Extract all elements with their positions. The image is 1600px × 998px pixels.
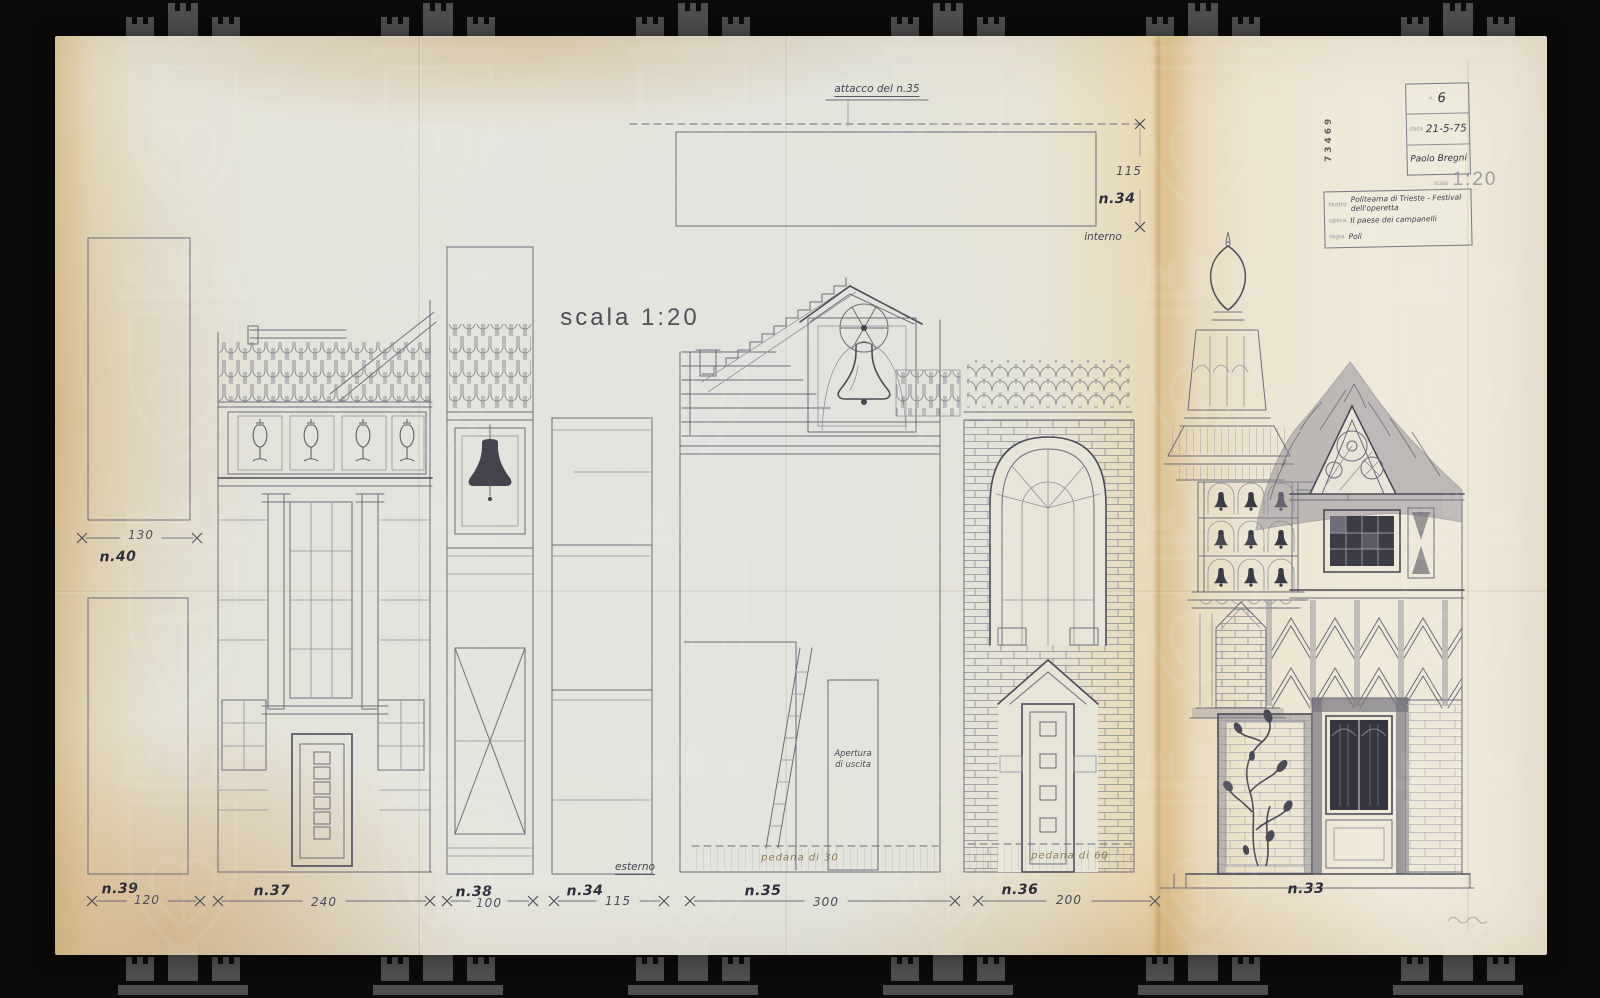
dim-n37: 240 [311,895,337,909]
piece-label-n36: n.36 [1001,882,1038,899]
dim-n38: 100 [476,896,502,910]
dim-n39: 120 [134,893,160,907]
dim-n34: 115 [605,894,631,908]
sheet-no-label: n. [1429,95,1435,102]
opera-label: opera [1329,217,1346,224]
piece-label-n40: n.40 [99,549,136,566]
note-interno: interno [1084,231,1122,243]
scale-label: scala [1434,181,1448,187]
date-label: data [1409,126,1423,133]
piece-label-n35: n.35 [744,883,781,900]
date-value: 21-5-75 [1426,122,1467,135]
note-pedana-n36: pedana di 60 [1031,851,1109,862]
sheet-number: 6 [1437,91,1446,106]
teatro-label: teatro [1329,201,1347,208]
author-signature: Paolo Bregni [1410,154,1467,165]
opera-value: Il paese dei campanelli [1350,214,1437,225]
note-attacco: attacco del n.35 [834,83,919,97]
regia-value: Poli [1348,232,1361,241]
dim-n40: 130 [128,528,154,542]
piece-label-n34: n.34 [566,883,603,900]
piece-label-n39: n.39 [101,881,138,898]
title-block-lower: teatro Politeama di Trieste - Festival d… [1323,188,1472,248]
piece-label-top-plan: n.34 [1098,191,1135,208]
dim-top-plan: 115 [1116,164,1142,178]
note-pedana-n35: pedana di 30 [761,853,839,864]
scale-value: 1:20 [1452,169,1497,190]
dim-n36: 200 [1056,893,1082,907]
title-block-upper: n. 6 data 21-5-75 Paolo Bregni [1405,82,1471,175]
photo-of-blueprint: scala 1:20 n.39 n.37 n.38 n.34 n.35 n.36… [0,0,1600,998]
piece-label-n37: n.37 [253,883,290,900]
note-apertura-uscita: Apertura di uscita [832,749,874,771]
scale-note: scala 1:20 [560,304,699,332]
archive-stamp-number: 73469 [1324,92,1334,162]
annotations-layer: scala 1:20 n.39 n.37 n.38 n.34 n.35 n.36… [0,0,1600,998]
regia-label: regia [1329,233,1344,240]
dim-n35: 300 [813,895,839,909]
note-esterno: esterno [615,861,655,875]
piece-label-n33: n.33 [1287,881,1324,898]
